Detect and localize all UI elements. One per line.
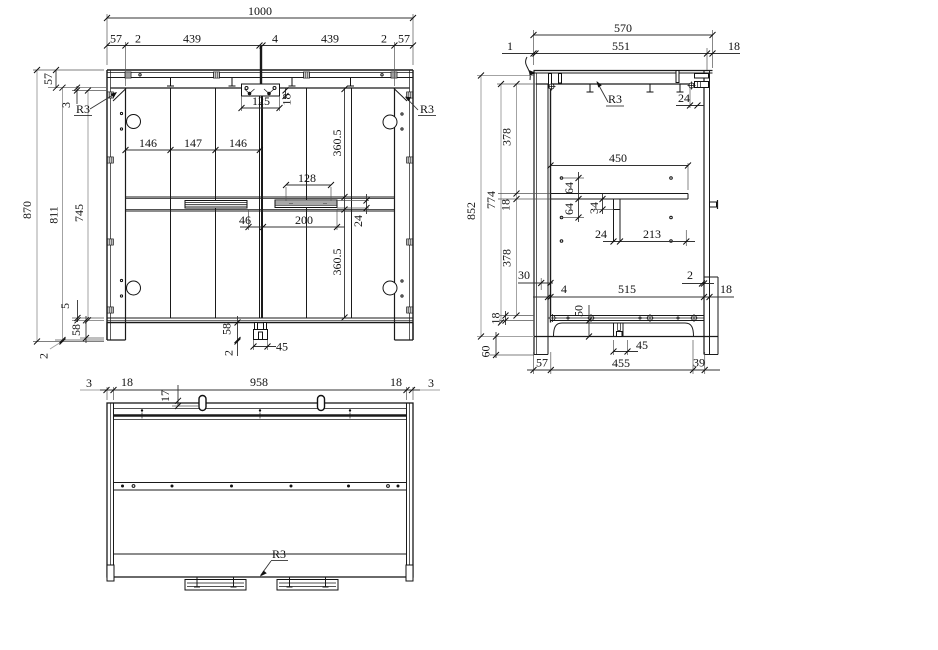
dim-front-57-top: 57 [41, 73, 55, 85]
dim-side-515: 515 [618, 282, 636, 296]
dim-front-2-centre: 2 [222, 350, 236, 356]
dim-side-24-top: 24 [678, 91, 690, 105]
plan-view: 3 18 958 18 3 17 R3 [80, 375, 440, 590]
dim-side-378-upper: 378 [500, 128, 514, 146]
dim-front-top-4: 4 [272, 32, 278, 46]
dim-front-46: 46 [239, 213, 251, 227]
plan-structure [107, 396, 413, 591]
dim-plan-3-left: 3 [86, 376, 92, 390]
dim-front-top-2l: 2 [135, 32, 141, 46]
label-plan-r3: R3 [272, 547, 286, 561]
dim-side-39: 39 [693, 356, 705, 370]
dim-side-378-lower: 378 [500, 249, 514, 267]
dim-front-146a: 146 [139, 136, 157, 150]
dim-side-4: 4 [561, 282, 567, 296]
dim-front-top-439r: 439 [321, 32, 339, 46]
dim-front-870: 870 [20, 201, 34, 219]
dim-front-200: 200 [295, 213, 313, 227]
dim-front-top-2r: 2 [381, 32, 387, 46]
dim-side-45: 45 [636, 338, 648, 352]
dim-front-745: 745 [72, 204, 86, 222]
drawing-canvas: 1000 57 2 439 4 439 2 57 870 811 745 57 … [0, 0, 938, 650]
front-labels: 1000 57 2 439 4 439 2 57 870 811 745 57 … [20, 4, 434, 359]
dim-side-18-shelf: 18 [499, 199, 513, 211]
front-structure [107, 46, 413, 340]
dim-side-60: 60 [479, 346, 493, 358]
dim-side-18-top: 18 [728, 39, 740, 53]
front-dimensions [33, 14, 436, 356]
dim-side-18-bottom-right: 18 [720, 282, 732, 296]
dim-front-147: 147 [184, 136, 202, 150]
dim-front-top-57l: 57 [110, 32, 122, 46]
dim-plan-17: 17 [158, 390, 172, 402]
dim-front-5: 5 [58, 303, 72, 309]
cad-technical-drawing: 1000 57 2 439 4 439 2 57 870 811 745 57 … [0, 0, 938, 650]
dim-front-146b: 146 [229, 136, 247, 150]
dim-side-570: 570 [614, 21, 632, 35]
dim-side-24-mid: 24 [595, 227, 607, 241]
dim-side-450: 450 [609, 151, 627, 165]
dim-front-128: 128 [298, 171, 316, 185]
dim-front-18: 18 [280, 94, 294, 106]
dim-side-57: 57 [536, 356, 548, 370]
dim-plan-18-right: 18 [390, 375, 402, 389]
label-front-r3-left: R3 [76, 102, 90, 116]
dim-plan-958: 958 [250, 375, 268, 389]
dim-front-360-upper: 360.5 [330, 130, 344, 157]
dim-front-125: 125 [252, 94, 270, 108]
dim-side-2: 2 [687, 268, 693, 282]
dim-side-34: 34 [587, 202, 601, 214]
dim-side-18-rail: 18 [489, 313, 503, 325]
dim-side-213: 213 [643, 227, 661, 241]
dim-front-top-439l: 439 [183, 32, 201, 46]
label-side-r3: R3 [608, 92, 622, 106]
dim-side-455: 455 [612, 356, 630, 370]
dim-front-top-57r: 57 [398, 32, 410, 46]
dim-side-64-upper: 64 [562, 182, 576, 194]
dim-side-1: 1 [507, 39, 513, 53]
dim-side-774: 774 [484, 191, 498, 209]
dim-front-58-centre: 58 [220, 323, 234, 335]
dim-side-50: 50 [572, 305, 586, 317]
dim-plan-3-right: 3 [428, 376, 434, 390]
dim-front-3: 3 [59, 102, 73, 108]
dim-front-24: 24 [351, 215, 365, 227]
dim-side-64-lower: 64 [562, 203, 576, 215]
label-front-r3-right: R3 [420, 102, 434, 116]
side-view: 570 551 1 18 R3 24 852 774 378 18 378 30… [464, 21, 740, 374]
dim-front-2-bottom: 2 [37, 353, 51, 359]
dim-front-811: 811 [47, 206, 61, 224]
dim-front-total-width: 1000 [248, 4, 272, 18]
front-view: 1000 57 2 439 4 439 2 57 870 811 745 57 … [20, 4, 436, 359]
dim-side-30: 30 [518, 268, 530, 282]
dim-front-360-lower: 360.5 [330, 249, 344, 276]
dim-front-58-left: 58 [69, 324, 83, 336]
dim-plan-18-left: 18 [121, 375, 133, 389]
dim-front-45: 45 [276, 340, 288, 354]
dim-side-551: 551 [612, 39, 630, 53]
dim-side-852: 852 [464, 202, 478, 220]
